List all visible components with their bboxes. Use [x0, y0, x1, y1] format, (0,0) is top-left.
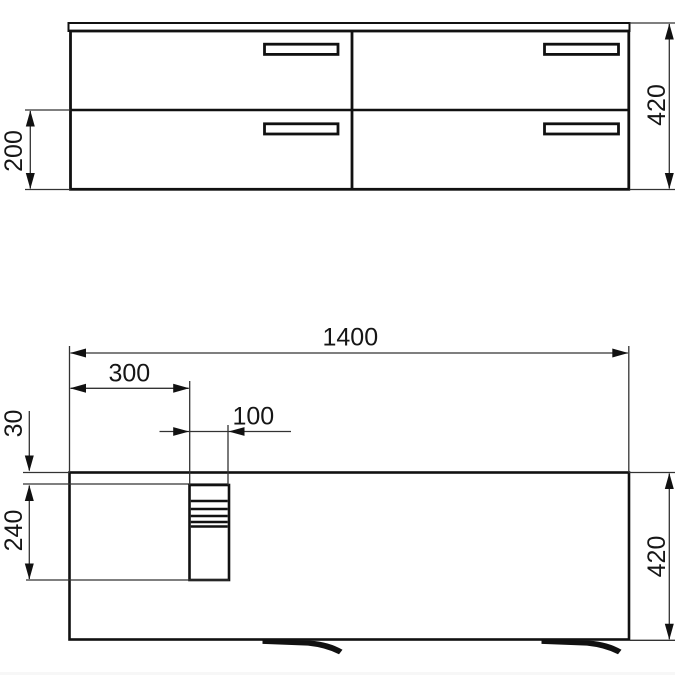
svg-text:1400: 1400 — [322, 324, 378, 352]
svg-text:420: 420 — [643, 536, 671, 578]
svg-text:30: 30 — [0, 410, 28, 438]
svg-text:100: 100 — [232, 402, 274, 430]
svg-text:300: 300 — [108, 360, 150, 388]
svg-text:200: 200 — [0, 130, 28, 172]
svg-text:420: 420 — [643, 84, 671, 126]
svg-text:240: 240 — [0, 510, 28, 552]
